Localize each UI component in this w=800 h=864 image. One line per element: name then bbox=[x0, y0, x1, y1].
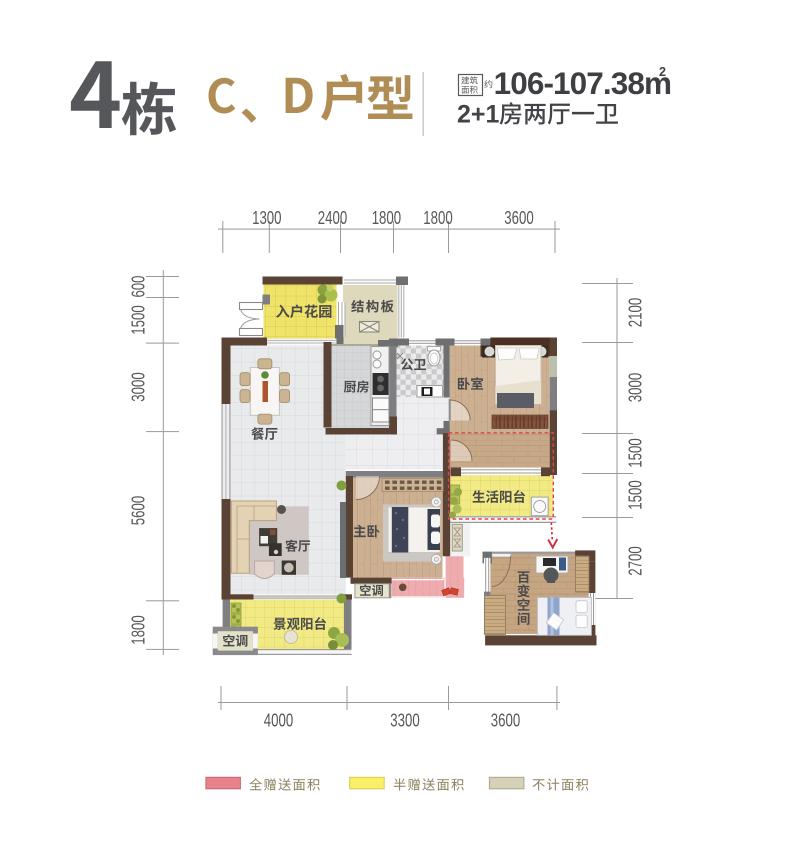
svg-text:2400: 2400 bbox=[318, 207, 347, 228]
svg-text:2+1: 2+1 bbox=[457, 101, 500, 129]
svg-text:1300: 1300 bbox=[252, 207, 281, 228]
svg-text:1500: 1500 bbox=[128, 305, 149, 334]
svg-text:106-107.38m: 106-107.38m bbox=[494, 65, 672, 101]
svg-text:600: 600 bbox=[128, 276, 149, 298]
svg-text:2: 2 bbox=[659, 65, 666, 79]
svg-text:2100: 2100 bbox=[625, 298, 646, 327]
svg-text:4000: 4000 bbox=[264, 710, 293, 731]
svg-text:1800: 1800 bbox=[128, 615, 149, 644]
svg-text:1500: 1500 bbox=[625, 480, 646, 509]
svg-text:3000: 3000 bbox=[625, 373, 646, 402]
svg-text:5600: 5600 bbox=[128, 496, 149, 525]
svg-text:1800: 1800 bbox=[372, 207, 401, 228]
svg-text:3600: 3600 bbox=[491, 710, 520, 731]
svg-text:1500: 1500 bbox=[625, 438, 646, 467]
svg-text:1800: 1800 bbox=[423, 207, 452, 228]
svg-text:3600: 3600 bbox=[504, 207, 533, 228]
svg-text:2700: 2700 bbox=[625, 546, 646, 575]
svg-text:3000: 3000 bbox=[128, 372, 149, 401]
svg-text:3300: 3300 bbox=[390, 710, 419, 731]
